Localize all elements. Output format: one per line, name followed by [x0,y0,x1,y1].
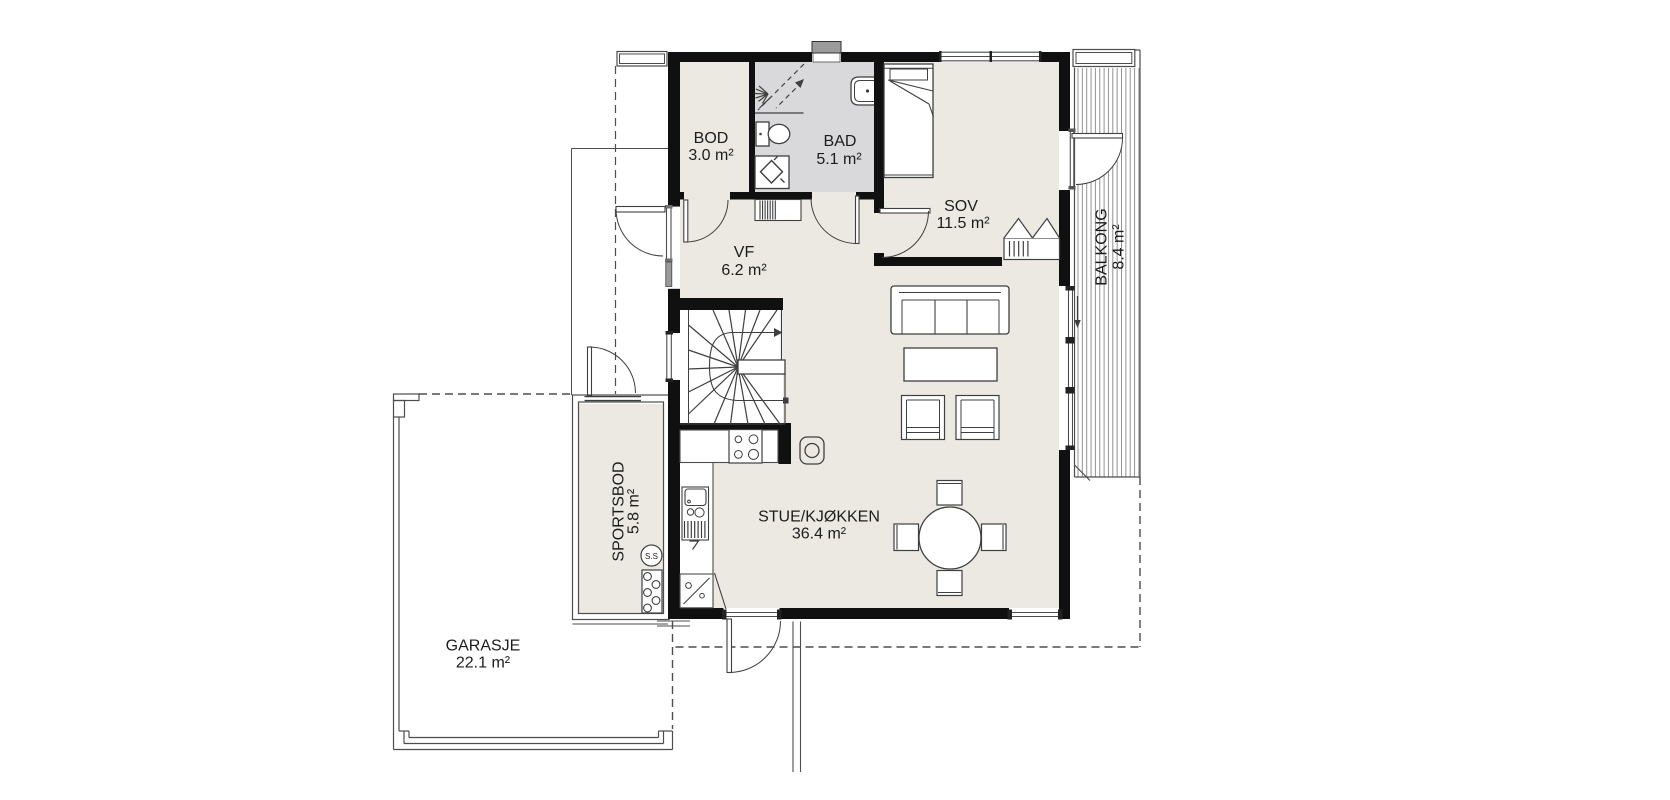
svg-text:3.0 m²: 3.0 m² [688,147,734,164]
svg-text:8.4 m²: 8.4 m² [1111,224,1128,270]
svg-text:BAD: BAD [824,133,857,150]
svg-text:5.8 m²: 5.8 m² [626,488,643,534]
svg-text:BOD: BOD [694,130,729,147]
svg-text:22.1 m²: 22.1 m² [456,655,511,672]
svg-text:6.2 m²: 6.2 m² [721,262,767,279]
svg-text:VF: VF [734,244,755,261]
svg-text:S.S: S.S [645,552,658,561]
svg-text:SOV: SOV [944,198,978,215]
svg-text:STUE/KJØKKEN: STUE/KJØKKEN [758,509,880,526]
svg-text:GARASJE: GARASJE [446,638,521,655]
svg-text:36.4 m²: 36.4 m² [792,526,847,543]
svg-text:BALKONG: BALKONG [1094,208,1111,285]
svg-text:11.5 m²: 11.5 m² [936,215,990,232]
svg-text:5.1 m²: 5.1 m² [816,151,862,168]
